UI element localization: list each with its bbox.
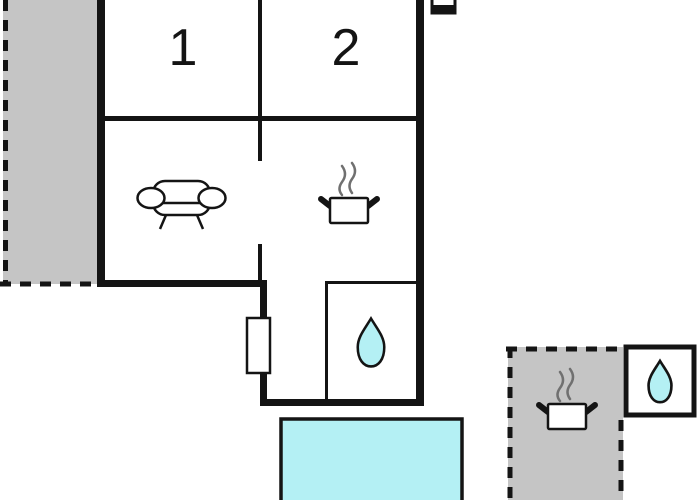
room-1-label: 1 [169,19,198,77]
wall-left [97,0,105,287]
building: 1 2 [97,0,455,406]
sofa-leg-right [197,215,203,229]
sofa-armrest-right [199,188,226,208]
steam-lines [340,163,356,195]
tv-icon [432,0,455,13]
floorplan: 1 2 [0,0,700,500]
wall-bottom [260,399,424,406]
wall-divider-vertical-upper [258,0,262,161]
sofa-leg-left [160,215,166,229]
terrace [0,0,97,284]
pot-body [330,198,368,223]
terrace-area [3,0,97,284]
cooking-pot-icon [321,163,377,223]
wall-right [416,0,424,406]
wall-bathroom-left [325,281,328,402]
swimming-pool [281,419,462,500]
water-drop-icon [358,319,385,367]
pot-body [548,404,586,429]
tv-screen [432,5,455,13]
sofa-icon [138,181,226,229]
window-marker [247,318,270,373]
annex [506,347,694,500]
pot-handle-left [321,199,330,206]
sofa-armrest-left [138,188,165,208]
wall-bathroom-top [325,281,417,284]
wall-bottom-left [97,280,267,287]
room-2-label: 2 [332,19,361,77]
pot-handle-right [368,199,377,206]
